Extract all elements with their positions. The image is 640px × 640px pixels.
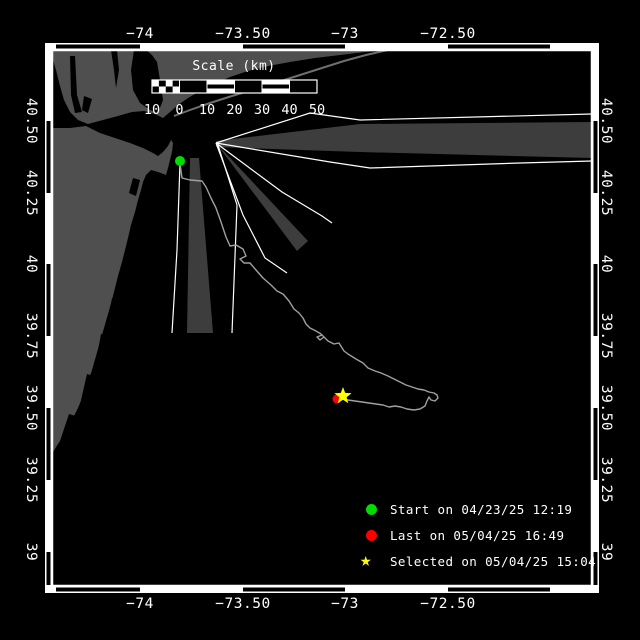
frame-seg <box>448 588 550 592</box>
scalebar-check <box>166 80 173 87</box>
lat-label-right-0: 40.50 <box>598 89 614 153</box>
dot-icon <box>358 526 380 544</box>
frame-seg <box>56 45 140 49</box>
lat-label-right-5: 39.25 <box>598 448 614 512</box>
frame-seg <box>594 121 598 193</box>
landmass-1 <box>53 126 173 452</box>
lat-label-left-0: 40.50 <box>23 89 39 153</box>
lon-label-top-1: −73.50 <box>198 26 288 42</box>
lat-label-right-4: 39.50 <box>598 376 614 440</box>
scalebar-check <box>173 87 180 94</box>
legend-label-0: Start on 04/23/25 12:19 <box>380 502 572 517</box>
scalebar-check <box>152 80 159 87</box>
frame-seg <box>448 45 550 49</box>
lat-label-left-3: 39.75 <box>23 304 39 368</box>
forecast-wedge-2 <box>187 158 213 333</box>
frame-seg <box>594 264 598 336</box>
scalebar-seg-stripe <box>262 85 290 89</box>
dot-glyph <box>366 530 377 541</box>
lon-label-bottom-1: −73.50 <box>198 596 288 612</box>
lat-label-left-2: 40 <box>23 232 39 296</box>
legend-row-2: ★Selected on 05/04/25 15:04 <box>358 548 596 574</box>
scalebar-tick-label-6: 50 <box>300 102 334 118</box>
frame-seg <box>47 264 51 336</box>
lon-label-top-0: −74 <box>95 26 185 42</box>
lon-label-bottom-3: −72.50 <box>403 596 493 612</box>
lat-label-left-4: 39.50 <box>23 376 39 440</box>
forecast-wedge-1 <box>216 143 308 251</box>
lat-label-right-3: 39.75 <box>598 304 614 368</box>
water-body-5 <box>134 228 143 244</box>
lat-label-left-1: 40.25 <box>23 161 39 225</box>
star-icon: ★ <box>358 552 380 570</box>
frame-seg <box>243 588 345 592</box>
legend-label-2: Selected on 05/04/25 15:04 <box>380 554 596 569</box>
water-body-6 <box>124 258 134 276</box>
dot-icon <box>358 500 380 518</box>
legend-row-0: Start on 04/23/25 12:19 <box>358 496 596 522</box>
lat-label-right-2: 40 <box>598 232 614 296</box>
forecast-fan-line-5 <box>172 163 180 333</box>
lat-label-left-5: 39.25 <box>23 448 39 512</box>
dot-glyph <box>366 504 377 515</box>
scalebar-title: Scale (km) <box>164 59 304 74</box>
frame-seg <box>47 408 51 480</box>
frame-seg <box>56 588 140 592</box>
drifter-track-map-figure: −74−74−73.50−73.50−73−73−72.50−72.5040.5… <box>0 0 640 640</box>
star-glyph: ★ <box>360 549 371 571</box>
legend-label-1: Last on 05/04/25 16:49 <box>380 528 564 543</box>
lat-label-right-6: 39 <box>598 520 614 584</box>
lon-label-bottom-2: −73 <box>300 596 390 612</box>
lat-label-left-6: 39 <box>23 520 39 584</box>
lon-label-bottom-0: −74 <box>95 596 185 612</box>
lon-label-top-3: −72.50 <box>403 26 493 42</box>
drifter-trajectory[interactable] <box>180 163 438 410</box>
start-marker[interactable] <box>175 156 185 166</box>
frame-seg <box>47 552 51 585</box>
scalebar-seg-stripe <box>207 85 235 89</box>
frame-seg <box>594 408 598 480</box>
lon-label-top-2: −73 <box>300 26 390 42</box>
legend-row-1: Last on 05/04/25 16:49 <box>358 522 596 548</box>
legend: Start on 04/23/25 12:19Last on 05/04/25 … <box>358 496 596 574</box>
scalebar-check <box>159 87 166 94</box>
frame-seg <box>47 121 51 193</box>
frame-seg <box>243 45 345 49</box>
lat-label-right-1: 40.25 <box>598 161 614 225</box>
